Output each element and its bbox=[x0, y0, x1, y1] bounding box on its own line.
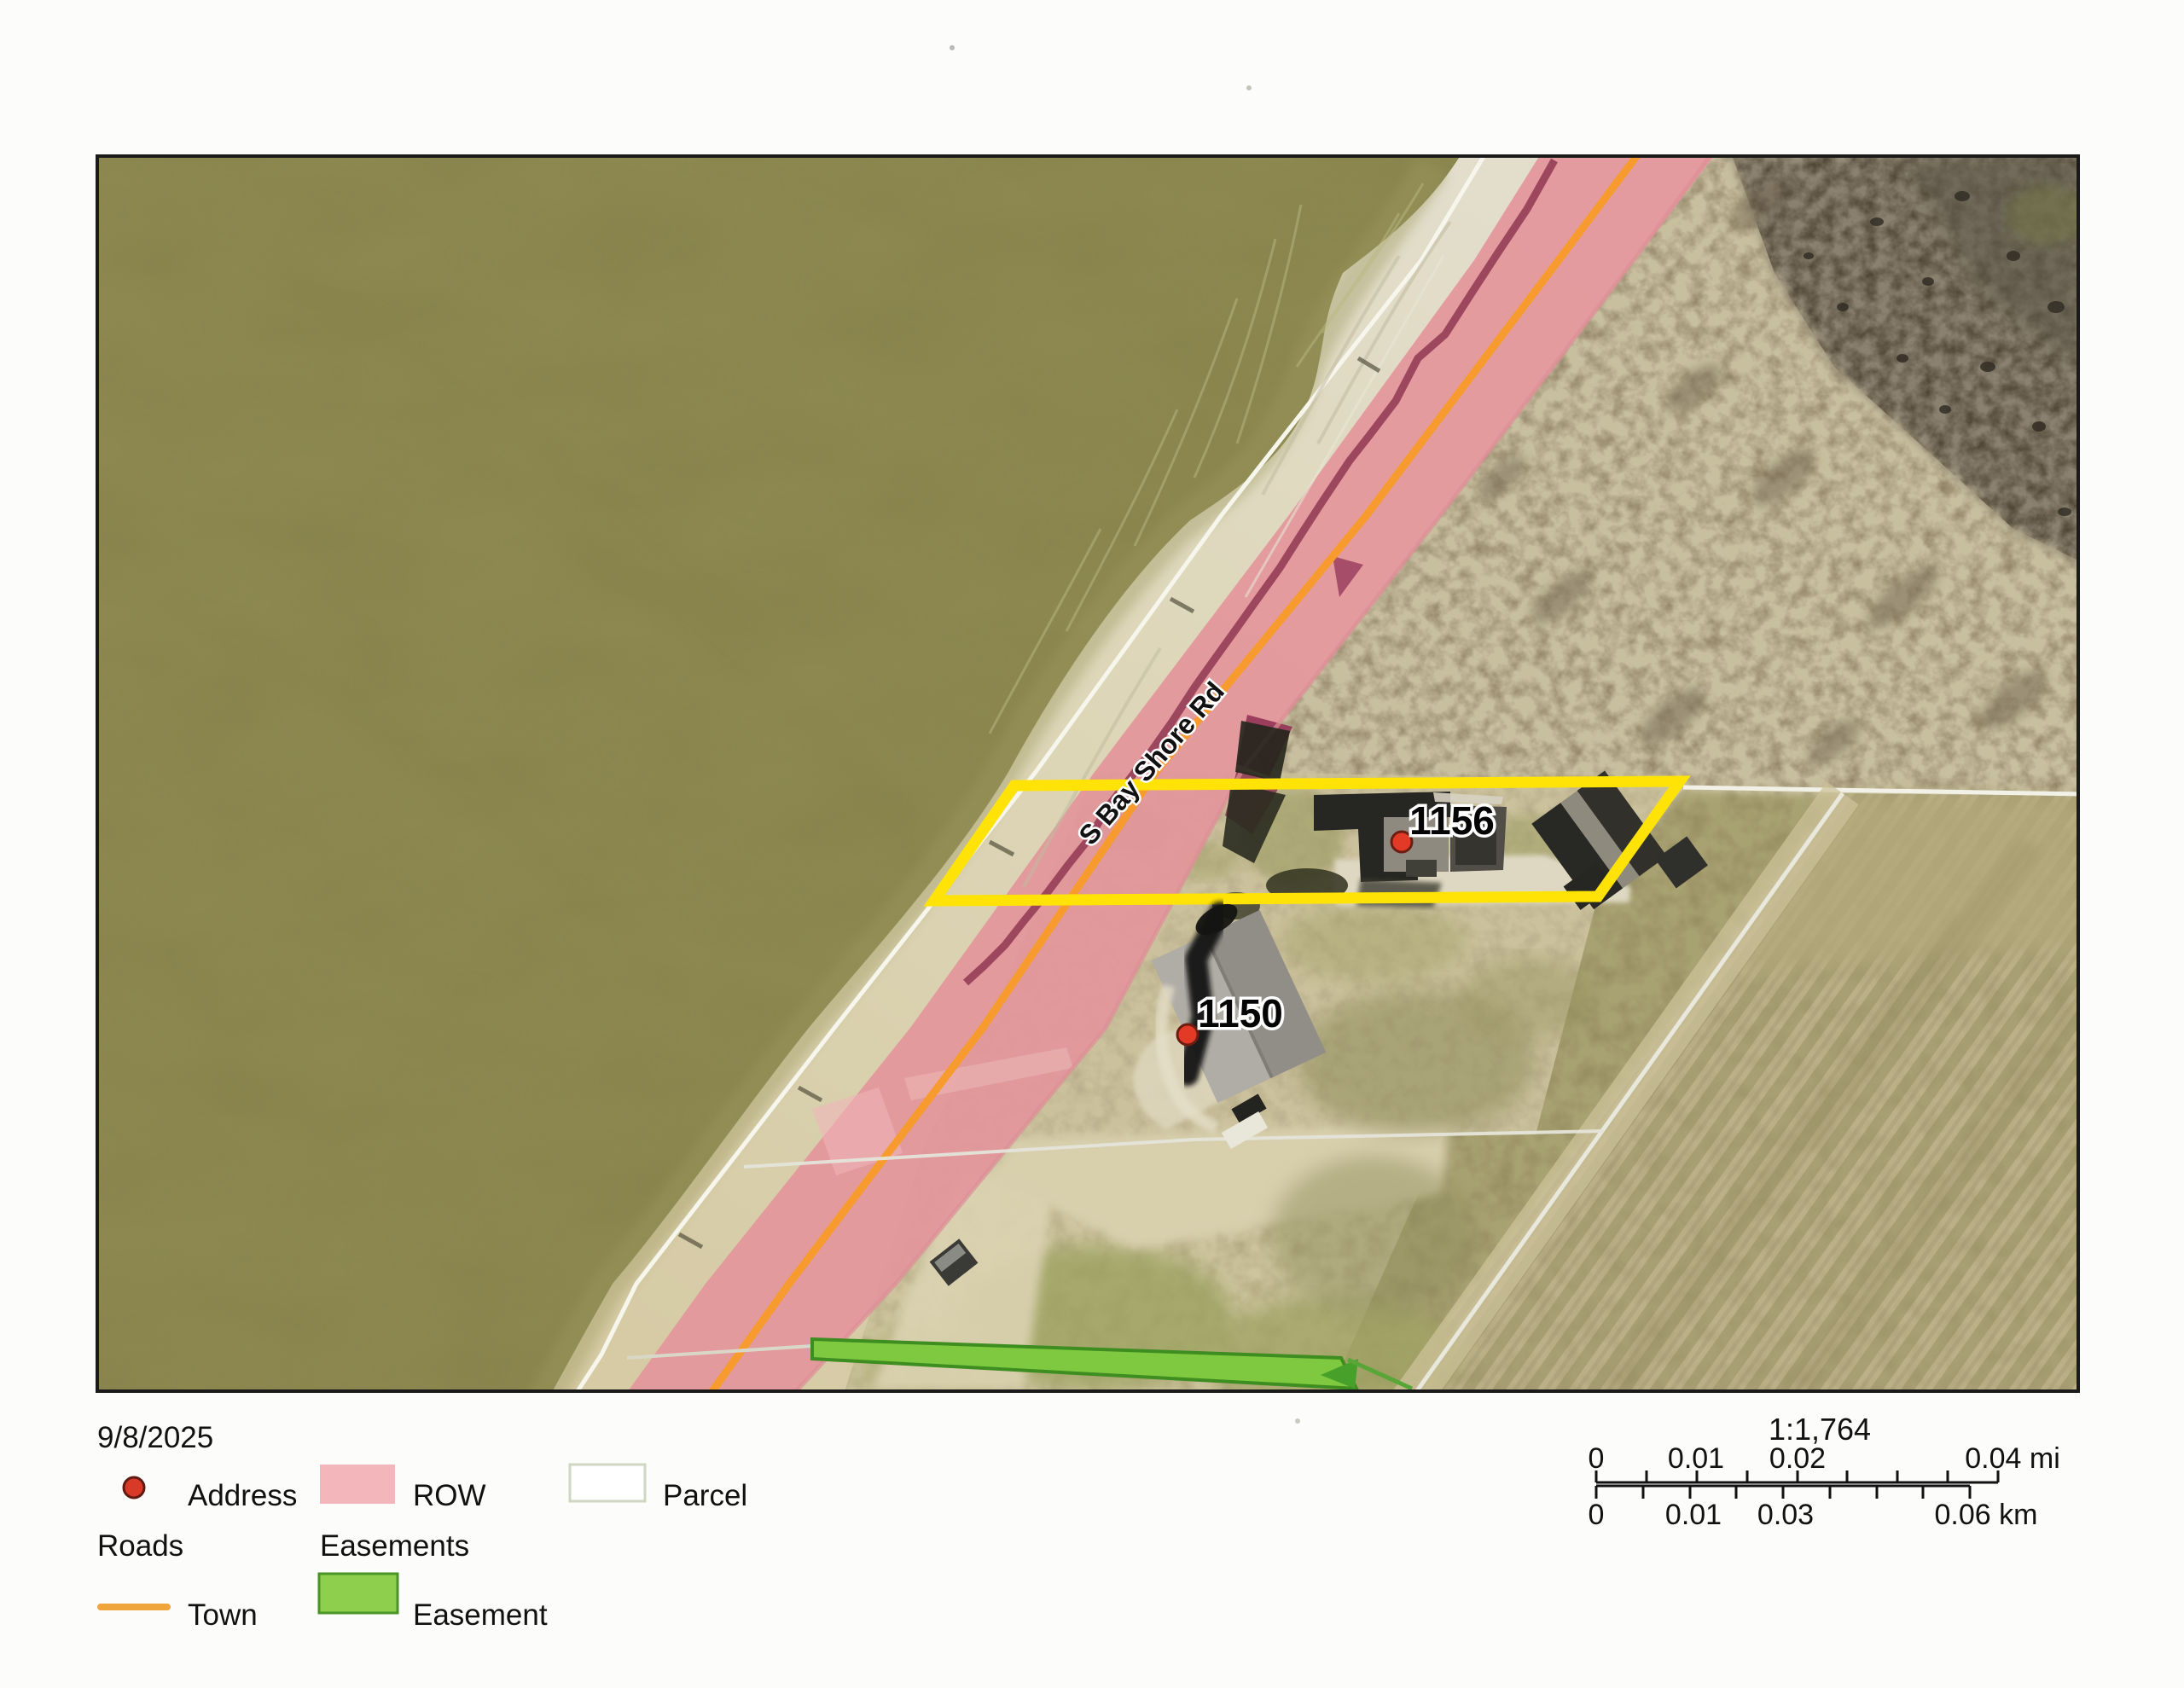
svg-text:Easements: Easements bbox=[320, 1529, 469, 1563]
svg-text:1150: 1150 bbox=[1198, 991, 1283, 1035]
svg-text:Town: Town bbox=[188, 1598, 258, 1632]
svg-text:0: 0 bbox=[1589, 1442, 1605, 1475]
svg-text:Parcel: Parcel bbox=[663, 1479, 747, 1512]
svg-text:0.02: 0.02 bbox=[1769, 1442, 1826, 1475]
svg-text:0.03: 0.03 bbox=[1757, 1499, 1814, 1531]
svg-text:0.04 mi: 0.04 mi bbox=[1965, 1442, 2060, 1475]
svg-text:Roads: Roads bbox=[97, 1529, 183, 1563]
svg-text:9/8/2025: 9/8/2025 bbox=[97, 1421, 213, 1454]
svg-text:0.01: 0.01 bbox=[1665, 1499, 1722, 1531]
svg-text:0.01: 0.01 bbox=[1668, 1442, 1724, 1475]
svg-text:ROW: ROW bbox=[413, 1479, 486, 1512]
svg-text:1:1,764: 1:1,764 bbox=[1769, 1412, 1871, 1447]
svg-text:0.06 km: 0.06 km bbox=[1935, 1499, 2038, 1531]
svg-text:1156: 1156 bbox=[1409, 798, 1495, 843]
svg-text:0: 0 bbox=[1589, 1499, 1605, 1531]
svg-text:Easement: Easement bbox=[413, 1598, 548, 1632]
svg-text:Address: Address bbox=[188, 1479, 297, 1512]
